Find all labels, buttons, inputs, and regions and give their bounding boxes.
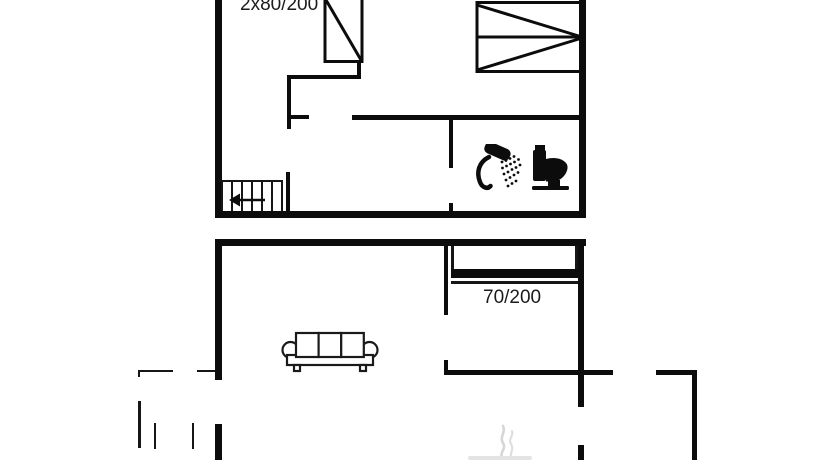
sofa-icon <box>281 329 379 373</box>
toilet-icon <box>532 145 570 191</box>
wall-segment <box>287 75 291 129</box>
wall-extension-right <box>692 373 697 460</box>
wall-segment <box>287 115 309 119</box>
wall-segment <box>449 203 453 212</box>
wall-left-lower <box>215 239 222 380</box>
wall-right-lower-2 <box>578 445 584 460</box>
stove-top-edge <box>468 456 532 460</box>
wall-bedroom-lower <box>444 246 448 315</box>
wall-segment <box>286 172 290 211</box>
wall-top-lower <box>215 239 586 246</box>
left-arrow-icon <box>227 192 267 208</box>
floor-plan: 2x80/200 <box>0 0 834 460</box>
smoke-icon <box>489 424 525 460</box>
wall-segment <box>656 370 697 375</box>
wall-right-lower <box>578 239 584 407</box>
shower-icon <box>474 144 526 194</box>
upper-bed-size-label: 2x80/200 <box>240 0 318 14</box>
single-bed-icon <box>323 0 364 64</box>
wall-segment <box>444 370 613 375</box>
wall-bathroom <box>449 115 453 168</box>
wall-left-lower-2 <box>215 424 222 460</box>
double-bed-icon <box>475 0 585 74</box>
wall-bottom-upper <box>215 211 586 218</box>
wall-corridor <box>352 115 586 120</box>
wall-segment <box>287 75 361 79</box>
lower-bed-size-label: 70/200 <box>483 288 541 307</box>
